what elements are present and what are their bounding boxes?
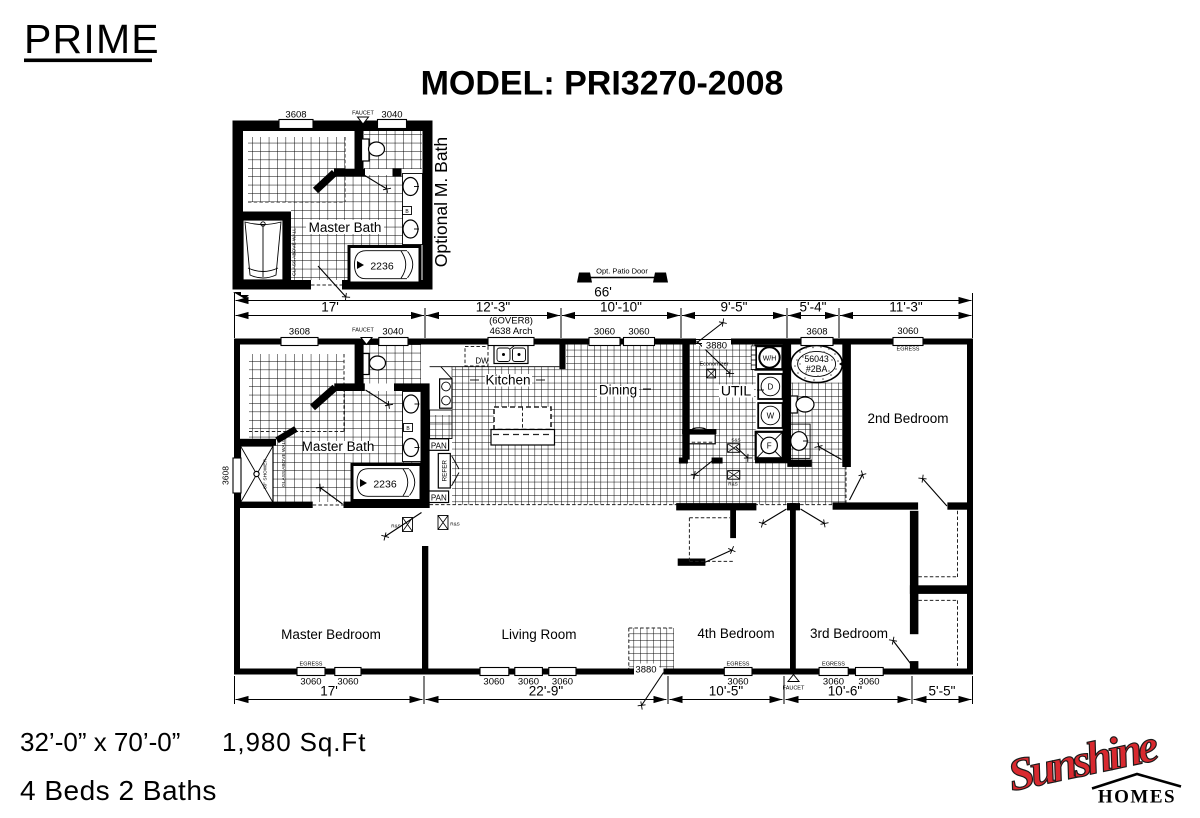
svg-text:1,980 Sq.Ft: 1,980 Sq.Ft [222,727,366,757]
svg-text:REFER: REFER [442,460,449,482]
svg-text:32’-0” x 70’-0”: 32’-0” x 70’-0” [20,727,180,757]
svg-text:DW: DW [475,357,489,366]
svg-text:17': 17' [320,684,338,699]
svg-text:22'-9": 22'-9" [529,684,564,699]
svg-text:3060: 3060 [628,327,649,338]
svg-text:HOMES: HOMES [1098,787,1176,808]
svg-text:4th Bedroom: 4th Bedroom [697,626,774,641]
svg-text:3880: 3880 [635,665,656,676]
svg-text:Kitchen: Kitchen [485,373,530,388]
svg-text:Master Bath: Master Bath [309,220,382,235]
svg-text:W: W [767,412,775,421]
svg-text:D: D [768,383,774,392]
svg-text:3060: 3060 [337,677,358,688]
svg-text:3608: 3608 [221,466,231,485]
svg-text:R&S: R&S [391,524,400,529]
svg-text:Living Room: Living Room [501,627,576,642]
svg-text:S&S: S&S [731,438,740,443]
svg-text:R&S: R&S [728,482,737,487]
svg-text:10'-5": 10'-5" [709,684,744,699]
svg-text:66': 66' [594,285,612,300]
svg-text:2236: 2236 [370,261,394,273]
svg-text:11'-3": 11'-3" [889,300,923,315]
svg-text:#2BA: #2BA [806,364,828,374]
svg-text:PRIME: PRIME [24,16,160,62]
svg-text:FAUCET: FAUCET [783,686,805,692]
svg-text:4 Beds 2 Baths: 4 Beds 2 Baths [20,775,217,806]
svg-text:(6OVER8): (6OVER8) [489,316,533,327]
svg-text:2nd Bedroom: 2nd Bedroom [867,411,948,426]
svg-text:EGRESS: EGRESS [897,347,920,353]
svg-text:EGRESS: EGRESS [300,662,323,668]
svg-text:Economizer: Economizer [699,362,728,368]
svg-text:4638 Arch: 4638 Arch [490,326,533,337]
svg-text:W/H: W/H [763,356,777,363]
svg-text:3040: 3040 [381,110,402,121]
svg-text:3040: 3040 [382,327,403,338]
svg-text:3060: 3060 [483,677,504,688]
svg-text:12'-3": 12'-3" [476,300,511,315]
svg-text:10'-10": 10'-10" [600,300,642,315]
svg-text:3608: 3608 [806,327,827,338]
svg-text:GLASS ABOVE WALL: GLASS ABOVE WALL [292,228,298,276]
svg-text:17': 17' [321,300,339,315]
svg-text:PAN: PAN [431,494,447,503]
svg-text:Master Bath: Master Bath [302,439,375,454]
svg-text:3060: 3060 [897,326,918,337]
svg-text:3608: 3608 [289,327,310,338]
svg-text:3608: 3608 [285,110,306,121]
svg-text:56043: 56043 [804,354,829,364]
svg-text:FAUCET: FAUCET [352,111,374,117]
svg-text:5'-5": 5'-5" [929,684,956,699]
svg-text:60" SHOWER: 60" SHOWER [263,458,269,488]
svg-text:5'-4": 5'-4" [800,300,827,315]
svg-text:FAUCET: FAUCET [352,328,374,334]
svg-text:UTIL: UTIL [721,383,752,399]
svg-text:EGRESS: EGRESS [822,662,845,668]
svg-text:PAN: PAN [431,441,447,450]
svg-text:Master Bedroom: Master Bedroom [281,627,381,642]
svg-text:Opt. Patio Door: Opt. Patio Door [596,267,648,276]
svg-text:Optional M. Bath: Optional M. Bath [431,137,451,267]
svg-text:10'-6": 10'-6" [828,684,863,699]
svg-text:EGRESS: EGRESS [727,662,750,668]
svg-text:MODEL: PRI3270-2008: MODEL: PRI3270-2008 [421,65,784,103]
svg-text:GLASS ABOVE WALL: GLASS ABOVE WALL [281,439,287,487]
svg-text:3880: 3880 [706,341,727,352]
svg-text:Dining: Dining [599,383,637,398]
svg-text:R&S: R&S [450,522,459,527]
svg-text:3rd Bedroom: 3rd Bedroom [810,626,888,641]
svg-text:9'-5": 9'-5" [721,300,748,315]
svg-text:3060: 3060 [594,327,615,338]
svg-text:2236: 2236 [373,479,397,491]
svg-text:F: F [767,441,772,450]
svg-text:3060: 3060 [300,677,321,688]
